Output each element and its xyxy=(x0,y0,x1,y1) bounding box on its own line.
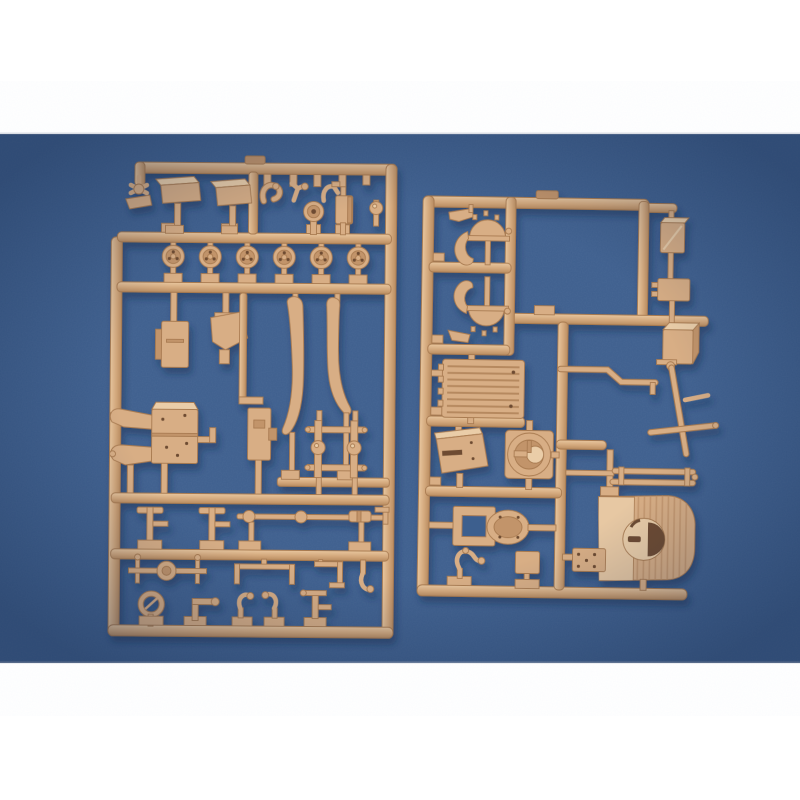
sprue-photo xyxy=(0,0,800,800)
vignette xyxy=(0,134,800,663)
photo-stage: Product photograph of two tan injection-… xyxy=(0,0,800,800)
